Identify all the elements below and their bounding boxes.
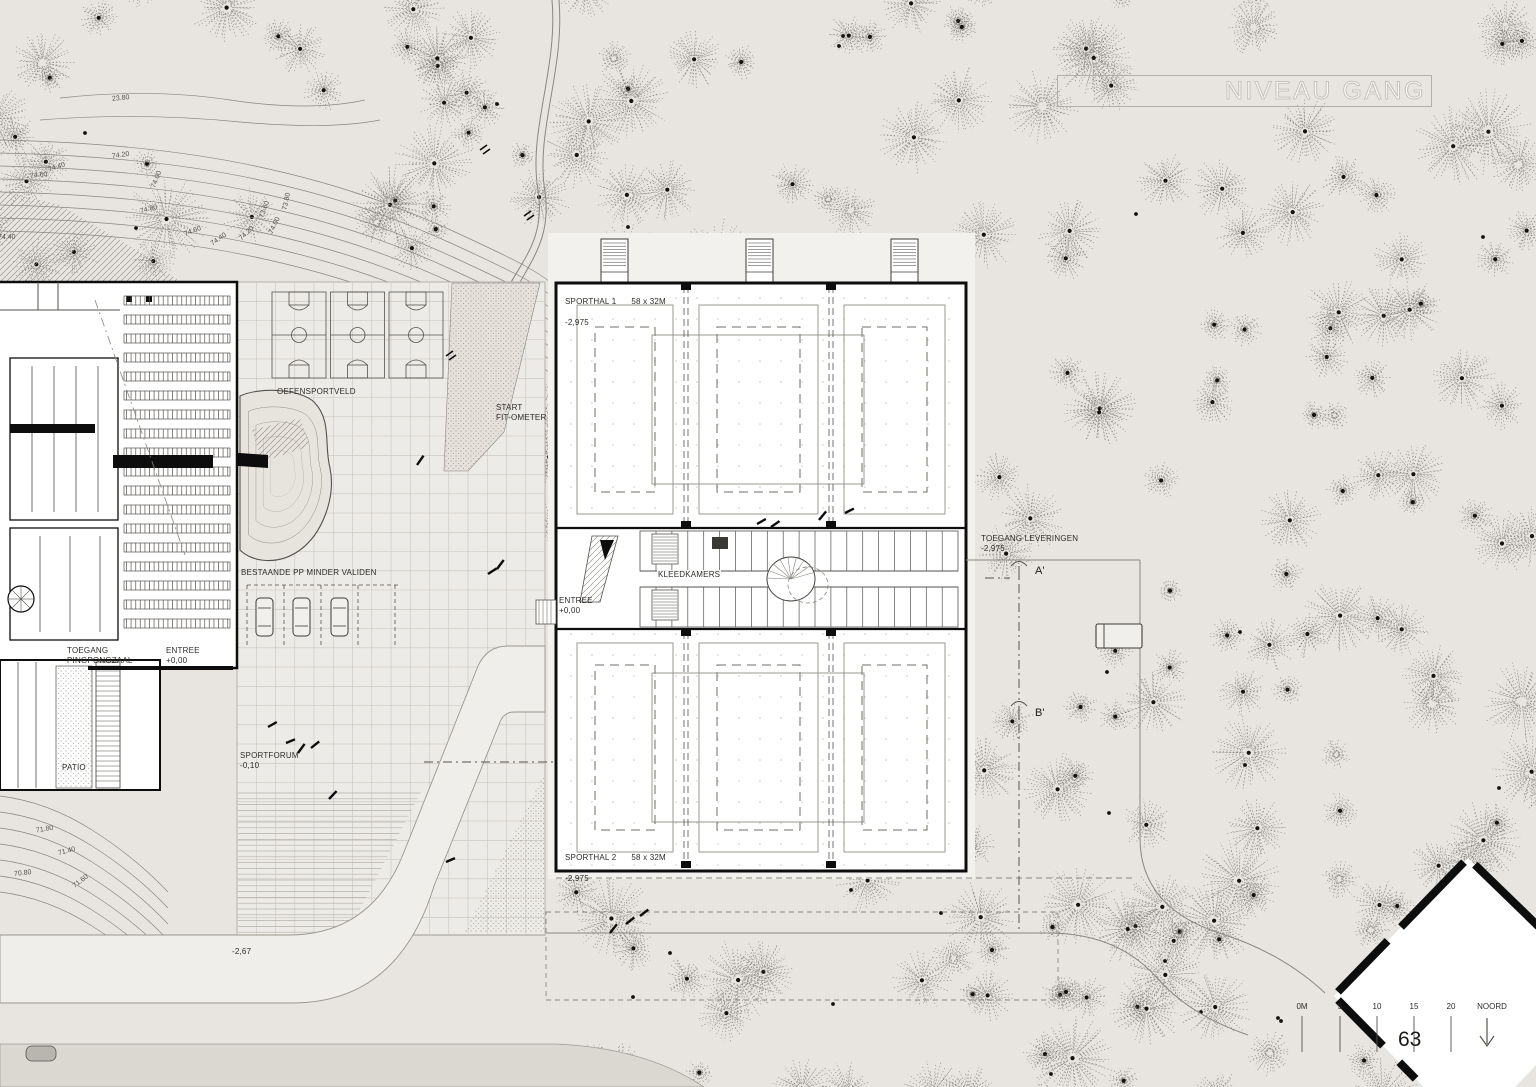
north-label: NOORD [1477,1002,1507,1011]
oefensportveld-courts [272,292,443,378]
contour-label: 74.40 [0,234,16,241]
scalebar-tick-20: 20 [1447,1002,1456,1011]
sporthal-building [536,233,975,879]
scalebar-tick-15: 15 [1410,1002,1419,1011]
site-svg [0,0,1536,1087]
drawing-title-box: NIVEAU GANG [1057,75,1432,107]
page-title: NIVEAU GANG [1225,77,1431,106]
page-number: 63 [1398,1028,1421,1052]
delivery-truck [1096,624,1142,648]
scalebar-tick-0m: 0M [1296,1002,1307,1011]
scalebar-tick-10: 10 [1373,1002,1382,1011]
scalebar-tick-5: 5 [1338,1002,1342,1011]
site-plan-canvas: NIVEAU GANG SPORTHAL 158 x 32M -2,975 SP… [0,0,1536,1087]
